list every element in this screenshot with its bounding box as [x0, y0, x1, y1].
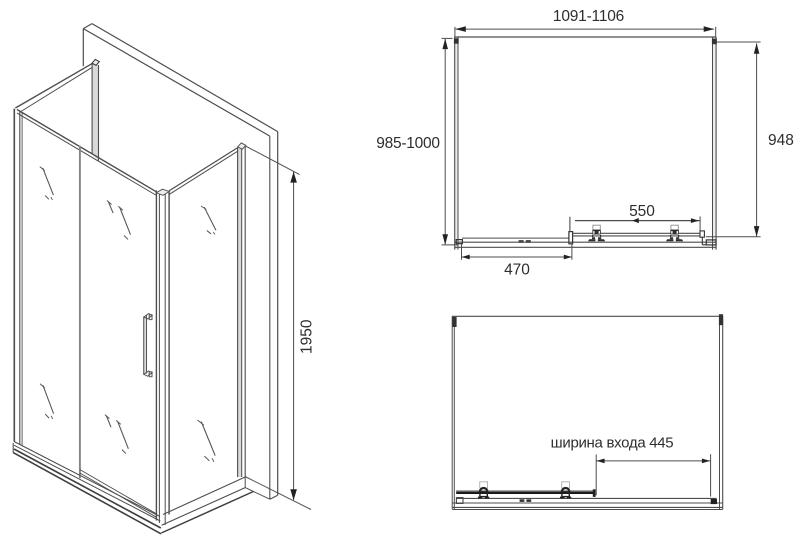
svg-text:948: 948: [768, 132, 794, 149]
svg-text:470: 470: [504, 262, 530, 279]
svg-text:ширина входа 445: ширина входа 445: [551, 434, 674, 451]
svg-text:985-1000: 985-1000: [376, 135, 440, 152]
svg-text:550: 550: [629, 203, 655, 220]
svg-text:1091-1106: 1091-1106: [553, 8, 624, 25]
svg-text:1950: 1950: [299, 319, 316, 354]
